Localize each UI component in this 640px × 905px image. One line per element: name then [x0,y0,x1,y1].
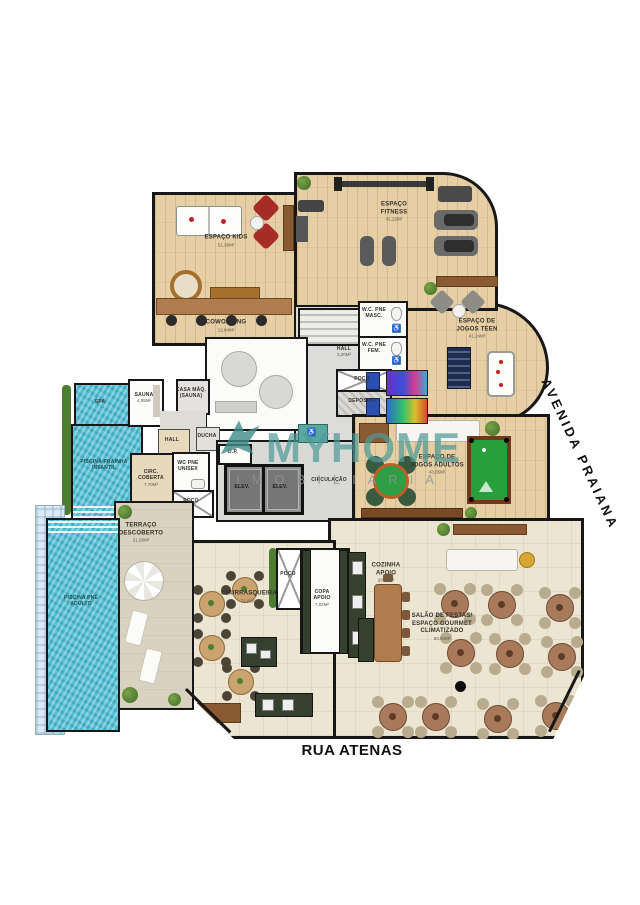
label-spa: SPA [85,399,115,405]
arcade-machine [386,370,428,396]
plant [465,507,477,519]
round-table [199,635,225,661]
label-poco-churras: POÇO [275,571,301,577]
machine-tank [259,375,293,409]
sink [260,650,271,659]
toilet [391,307,402,321]
sideboard [436,276,498,287]
barbell-rack [338,181,430,187]
round-table [496,640,524,668]
pocket [469,438,474,443]
label-copa-apoio: COPA APOIO7,02m² [307,589,337,607]
machine-tank [221,351,257,387]
pocket [504,438,509,443]
label-piscina-prainha: PISCINA PRAINHA INFANTIL [77,459,131,472]
watermark-subtitle: IMOBILIÁRIA [236,472,446,487]
chair [402,592,410,602]
billiard-table [467,436,511,504]
label-espaco-fitness: ESPAÇO FITNESS41,22m² [371,202,417,223]
lounger [124,609,149,646]
red-dot [499,383,503,387]
plant [168,693,181,706]
foosball-table [447,347,471,389]
plant [297,176,311,190]
stove [352,561,363,575]
spa-pool [74,383,130,428]
umbrella [124,561,164,601]
accessibility-icon: ♿ [392,324,401,333]
watermark-brand: MYHOME [266,424,461,472]
round-table [447,639,475,667]
red-dot [189,217,194,222]
lounger [138,647,163,684]
round-table [484,705,512,733]
plant [437,523,450,536]
rack-triangle [479,481,493,492]
pool-pne-adulto [46,518,120,732]
label-coworking: COWORKING12,84m² [186,319,266,332]
label-wc-pne-masc: W.C. PNE MASC. [357,307,391,320]
sink [352,595,363,609]
counter-dark [255,693,313,717]
pouf [519,552,535,568]
sideboard [453,524,527,535]
myhome-bird-logo-icon [213,414,265,466]
grill-island [241,637,277,667]
pocket [469,497,474,502]
pool-steps [48,520,118,533]
red-dot [221,219,226,224]
chair [402,646,410,656]
treadmill [434,236,478,256]
label-jogos-teen: ESPAÇO DE JOGOS TEEN41,24m² [451,319,503,340]
air-hockey-table [487,351,515,397]
exercise-bike [360,236,374,266]
machine-unit [215,401,257,413]
floor-plan-page: ♿ [0,0,640,905]
label-piscina-pne: PISCINA PNE ADULTO [59,595,103,608]
dumbbell-rack [296,216,308,242]
pocket [504,497,509,502]
round-table [422,703,450,731]
weight-bench [298,200,324,212]
red-dot [496,370,500,374]
office-chair [166,315,177,326]
coworking-desk [156,298,292,315]
gym-machine [438,186,472,202]
plant [122,687,138,703]
label-poco-sauna: POÇO [176,498,206,504]
arcade-machine [386,398,428,424]
cue-ball [482,448,486,452]
column [455,681,466,692]
label-cozinha-apoio: COZINHA APOIO29,80m² [365,563,407,584]
shelf [283,205,294,251]
treadmill-belt [444,240,474,252]
round-table [488,591,516,619]
accessibility-icon: ♿ [392,356,401,365]
treadmill [434,210,478,230]
label-circ-coberta: CIRC. COBERTA7,70m² [133,469,169,487]
kitchen-island [358,618,374,662]
label-casa-maq: CASA MÁQ. (SAUNA) [172,387,210,400]
round-table [546,594,574,622]
street-label-avenida-praiana: AVENIDA PRAIANA [538,376,621,532]
plant [118,505,132,519]
weight-plate [426,177,434,191]
label-terraco: TERRAÇO DESCOBERTO21,56m² [113,523,169,544]
label-wc-unisex: WC PNE UNISEX [172,460,204,473]
weight-plate [334,177,342,191]
label-salao: SALÃO DE FESTAS/ ESPAÇO GOURMET CLIMATIZ… [406,613,478,641]
plant [485,421,500,436]
hedge [62,385,71,515]
label-poco-core: POÇO [347,376,377,382]
label-wc-pne-fem: W.C. PNE FEM. [357,342,391,355]
exercise-bike [382,236,396,266]
label-hall-sauna: HALL [159,437,185,443]
treadmill-belt [444,214,474,226]
label-hall-core: HALL3,20m² [331,346,357,358]
label-churrasqueira: CHURRASQUEIRA71,82m² [211,590,287,603]
plant [424,282,437,295]
round-table [548,643,576,671]
room-wc-pne-unisex [172,452,210,494]
round-table [228,669,254,695]
label-deposito: DEPÓSITO [342,398,382,404]
sink [282,699,294,711]
side-table [452,304,466,318]
label-sauna: SAUNA4,55m² [129,392,159,404]
sofa [446,549,518,571]
toilet [391,342,402,356]
round-table [379,703,407,731]
street-label-rua-atenas: RUA ATENAS [301,742,402,759]
red-dot [499,360,503,364]
cooktop [262,699,274,711]
dining-table [374,584,402,662]
ping-pong-table [176,206,242,236]
side-table [250,216,264,230]
counter-dark [339,550,348,654]
grill [246,643,257,654]
label-espaco-kids: ESPAÇO KIDS51,36m² [186,234,266,247]
sideboard [361,508,463,518]
bathtub [191,479,205,489]
net [208,207,210,235]
